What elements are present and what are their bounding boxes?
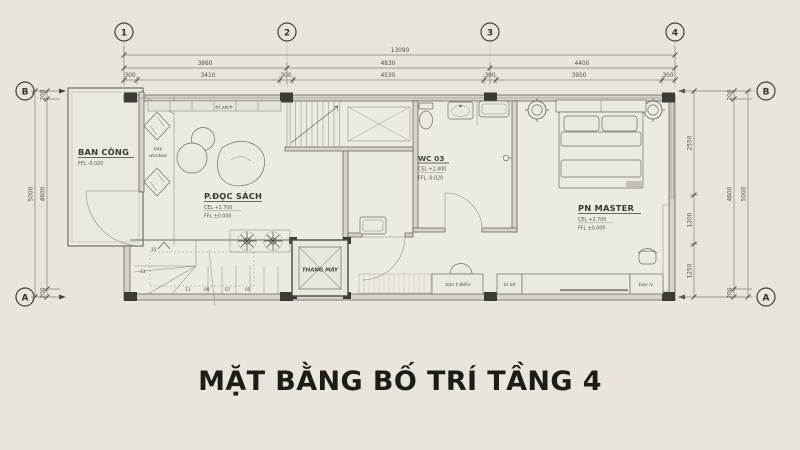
grid-label-a-right: A bbox=[763, 294, 770, 304]
dim-span-1-2: 3860 bbox=[198, 61, 213, 67]
stair-num-07: 07 bbox=[225, 287, 231, 293]
bed-throw bbox=[626, 181, 642, 187]
bed bbox=[556, 100, 646, 188]
floor-plan-page: 1 2 3 4 B A B A 13090 3860 4830 4400 300… bbox=[0, 0, 800, 450]
dimensions-right: 2550 1200 1250 200 4600 200 5000 bbox=[680, 89, 752, 300]
dim-left-0: 200 bbox=[41, 89, 47, 100]
stair-num-15: 15 bbox=[151, 247, 157, 253]
stair-num-05: 05 bbox=[245, 287, 251, 293]
bed-pillow bbox=[602, 116, 637, 131]
grid-label-3: 3 bbox=[487, 29, 493, 39]
reading-room-ffl: FFL ±0.000 bbox=[204, 214, 231, 220]
stair-num-11: 11 bbox=[185, 287, 191, 293]
dim-span-3-4: 4400 bbox=[575, 61, 590, 67]
stair-wall bbox=[285, 147, 413, 151]
wc-ffl: FFL -0.020 bbox=[418, 176, 443, 182]
wc-name: WC 03 bbox=[418, 154, 444, 163]
cabinet-label: tủ kệ bbox=[504, 281, 516, 288]
reading-room-cel: CEL +2.700 bbox=[204, 205, 232, 211]
drawing-title: MẶT BẰNG BỐ TRÍ TẦNG 4 bbox=[0, 366, 800, 397]
balcony-right-wall bbox=[139, 92, 144, 192]
stair-num-13: 13 bbox=[140, 269, 146, 275]
bed-blanket-fold bbox=[561, 132, 641, 146]
stair-num-09: 09 bbox=[204, 287, 210, 293]
dim-span-2-3: 4830 bbox=[381, 61, 396, 67]
master-ffl: FFL ±0.000 bbox=[578, 226, 605, 232]
toilet bbox=[420, 111, 433, 129]
balcony-name: BAN CÔNG bbox=[78, 146, 129, 157]
floor-plan-drawing: 1 2 3 4 B A B A 13090 3860 4830 4400 300… bbox=[0, 0, 800, 345]
dim-h3-3: 4530 bbox=[381, 73, 396, 79]
dim-right-inner-0: 2550 bbox=[688, 135, 694, 150]
reading-room-name: P.ĐỌC SÁCH bbox=[204, 190, 262, 201]
dim-right-0: 200 bbox=[728, 89, 734, 100]
bay-window-label-1: bay bbox=[154, 146, 163, 152]
wc-cel: CEL +2.400 bbox=[418, 167, 446, 173]
dimensions-top: 13090 3860 4830 4400 300 3410 300 4530 3… bbox=[122, 46, 678, 84]
dim-left-2: 200 bbox=[41, 287, 47, 298]
dim-h3-6: 300 bbox=[662, 73, 673, 79]
elevator-label: THANG MÁY bbox=[302, 267, 339, 274]
balcony-ffl: FFL -0.020 bbox=[78, 161, 103, 167]
bed-blanket-fold bbox=[561, 160, 641, 177]
dim-h3-4: 300 bbox=[484, 73, 495, 79]
dim-left-total: 5000 bbox=[29, 186, 35, 201]
grid-label-2: 2 bbox=[284, 29, 290, 39]
grid-label-b-right: B bbox=[763, 88, 770, 98]
master-cel: CEL +2.700 bbox=[578, 217, 606, 223]
desk-label: bàn lv bbox=[639, 281, 654, 288]
lounge-sofa bbox=[217, 141, 264, 186]
shaft-wall bbox=[343, 148, 348, 240]
desk-chair bbox=[639, 251, 656, 264]
counter-accent bbox=[560, 289, 628, 291]
elevator: THANG MÁY bbox=[292, 240, 348, 296]
dim-h3-1: 3410 bbox=[201, 73, 216, 79]
grid-label-4: 4 bbox=[672, 29, 678, 39]
grid-label-b-left: B bbox=[22, 88, 29, 98]
dim-right-1: 4600 bbox=[728, 186, 734, 201]
dim-left-1: 4600 bbox=[41, 186, 47, 201]
faucet-icon bbox=[459, 105, 461, 107]
dimensions-left: 5000 200 4600 200 bbox=[29, 89, 61, 300]
wc-left-wall bbox=[413, 101, 418, 232]
dim-right-inner-2: 1250 bbox=[688, 263, 694, 278]
grid-label-1: 1 bbox=[121, 29, 127, 39]
corridor-cabinet bbox=[360, 217, 386, 234]
dim-h3-0: 300 bbox=[124, 73, 135, 79]
dim-h3-5: 3950 bbox=[572, 73, 587, 79]
bed-pillow bbox=[564, 116, 599, 131]
dim-total-width: 13090 bbox=[391, 48, 410, 54]
armchair-round-2 bbox=[177, 143, 207, 173]
bookshelf-label: tủ sách bbox=[215, 104, 232, 111]
dim-right-inner-1: 1200 bbox=[688, 212, 694, 227]
wc-fixture bbox=[479, 101, 509, 117]
dim-h3-2: 300 bbox=[280, 73, 291, 79]
grid-label-a-left: A bbox=[22, 294, 29, 304]
toilet-tank bbox=[419, 103, 433, 109]
balcony-outline bbox=[68, 88, 143, 246]
dim-right-2: 200 bbox=[728, 287, 734, 298]
dim-right-total: 5000 bbox=[742, 186, 748, 201]
wc-right-wall bbox=[512, 101, 517, 232]
dressing-table-label: bàn t.điểm bbox=[445, 281, 471, 288]
bay-window-label-2: window bbox=[149, 153, 167, 159]
master-name: PN MASTER bbox=[578, 203, 634, 213]
